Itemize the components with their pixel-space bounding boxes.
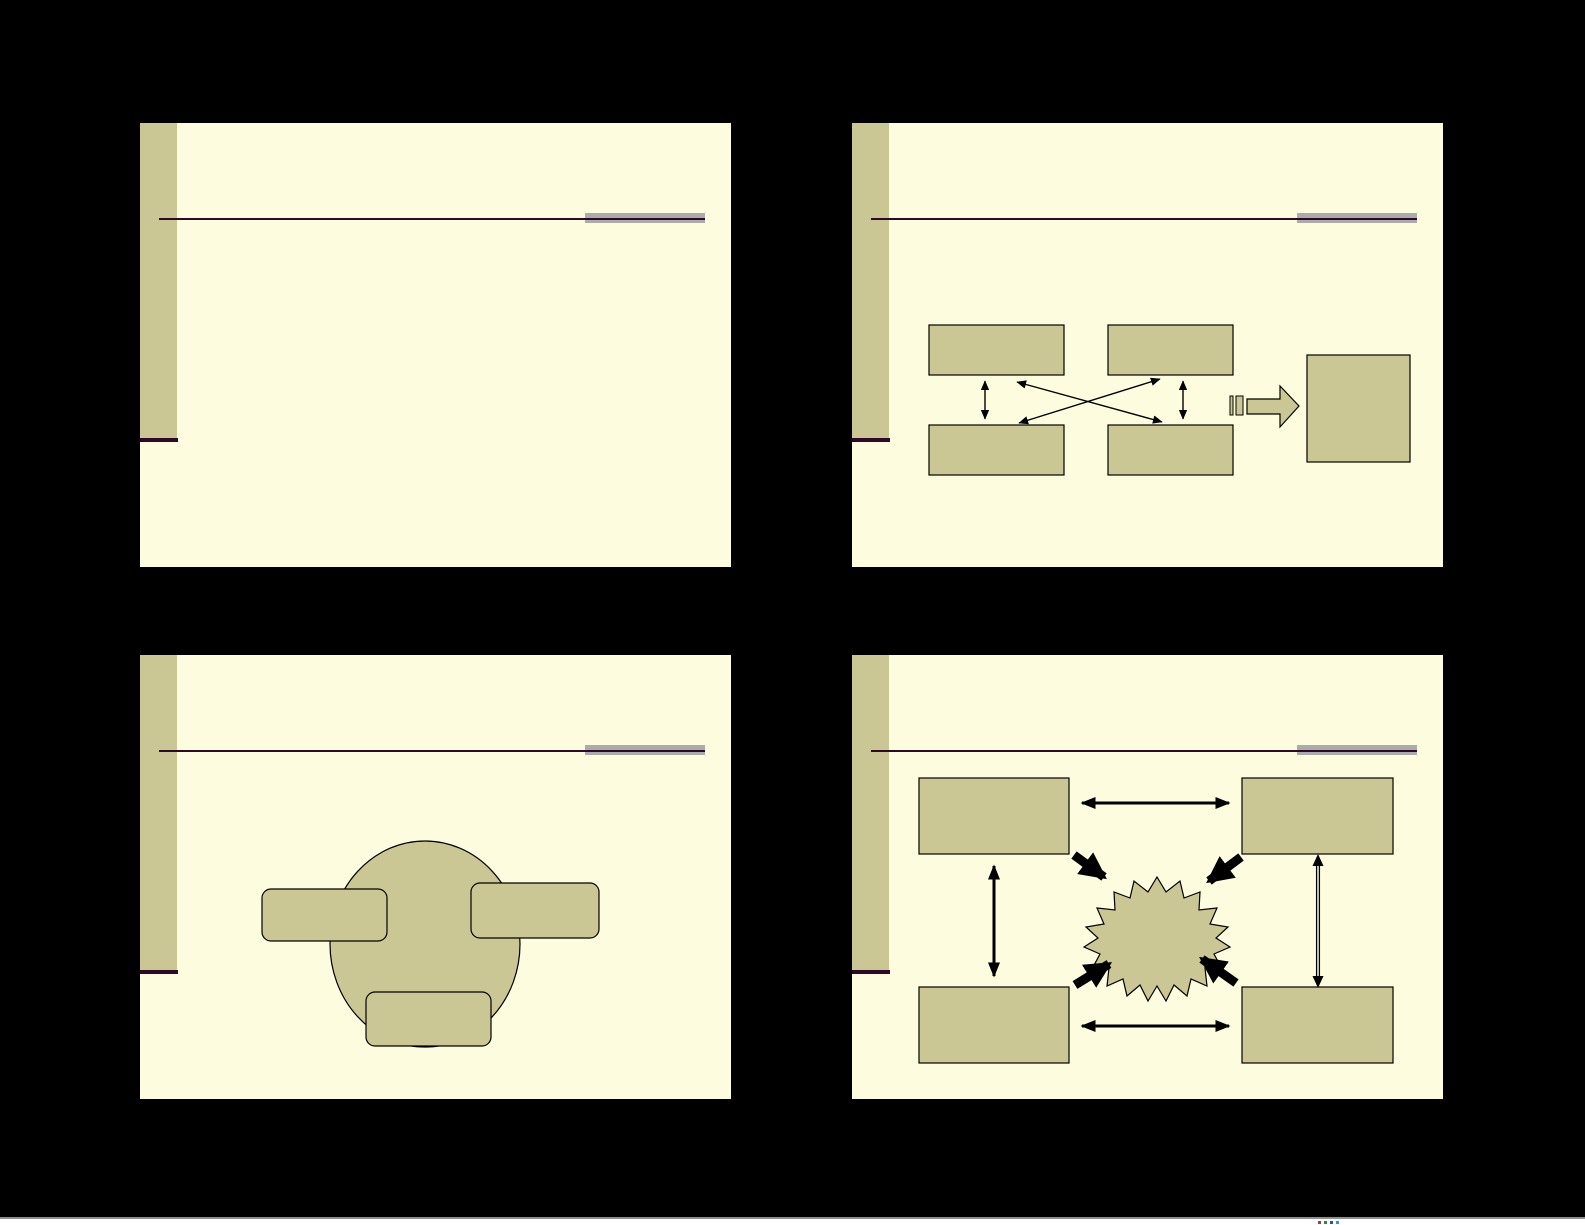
slide-4-diagram xyxy=(852,655,1443,1099)
slide-3 xyxy=(137,652,734,1102)
slide-1 xyxy=(137,120,734,570)
footer-strip xyxy=(0,1219,1585,1225)
process-box-4 xyxy=(1108,425,1233,475)
result-square xyxy=(1307,355,1410,462)
process-box-1 xyxy=(929,325,1064,375)
slide-3-diagram xyxy=(140,655,731,1099)
corner-rect-top-right xyxy=(1242,778,1393,854)
band-accent-tick xyxy=(140,438,178,442)
handout-page: { "document": { "type": "presentation-ha… xyxy=(0,0,1585,1225)
process-box-3 xyxy=(929,425,1064,475)
rounded-rect-bottom xyxy=(366,992,491,1046)
striped-arrow-stripe-2 xyxy=(1236,396,1243,415)
process-box-2 xyxy=(1108,325,1233,375)
rounded-rect-left xyxy=(262,889,387,941)
corner-rect-bottom-left xyxy=(919,987,1069,1063)
corner-rect-bottom-right xyxy=(1242,987,1393,1063)
title-rule xyxy=(159,218,705,220)
rounded-rect-right xyxy=(471,883,599,938)
thick-arrow-from-bottom-left xyxy=(1075,964,1109,985)
starburst xyxy=(1084,877,1230,1001)
striped-arrow xyxy=(1247,386,1299,427)
thick-arrow-from-top-left xyxy=(1074,855,1104,877)
double-arrow-right-hollow xyxy=(1313,854,1324,988)
sidebar-band xyxy=(140,123,177,438)
double-arrow-diagonal-a xyxy=(1017,382,1162,422)
slide-4 xyxy=(849,652,1446,1102)
corner-rect-top-left xyxy=(919,778,1069,854)
slide-2-diagram xyxy=(852,123,1443,567)
striped-arrow-stripe-1 xyxy=(1230,396,1233,415)
double-arrow-diagonal-b xyxy=(1019,379,1160,423)
thick-arrow-from-top-right xyxy=(1209,857,1241,881)
slide-2 xyxy=(849,120,1446,570)
footer-marks xyxy=(1318,1221,1339,1224)
